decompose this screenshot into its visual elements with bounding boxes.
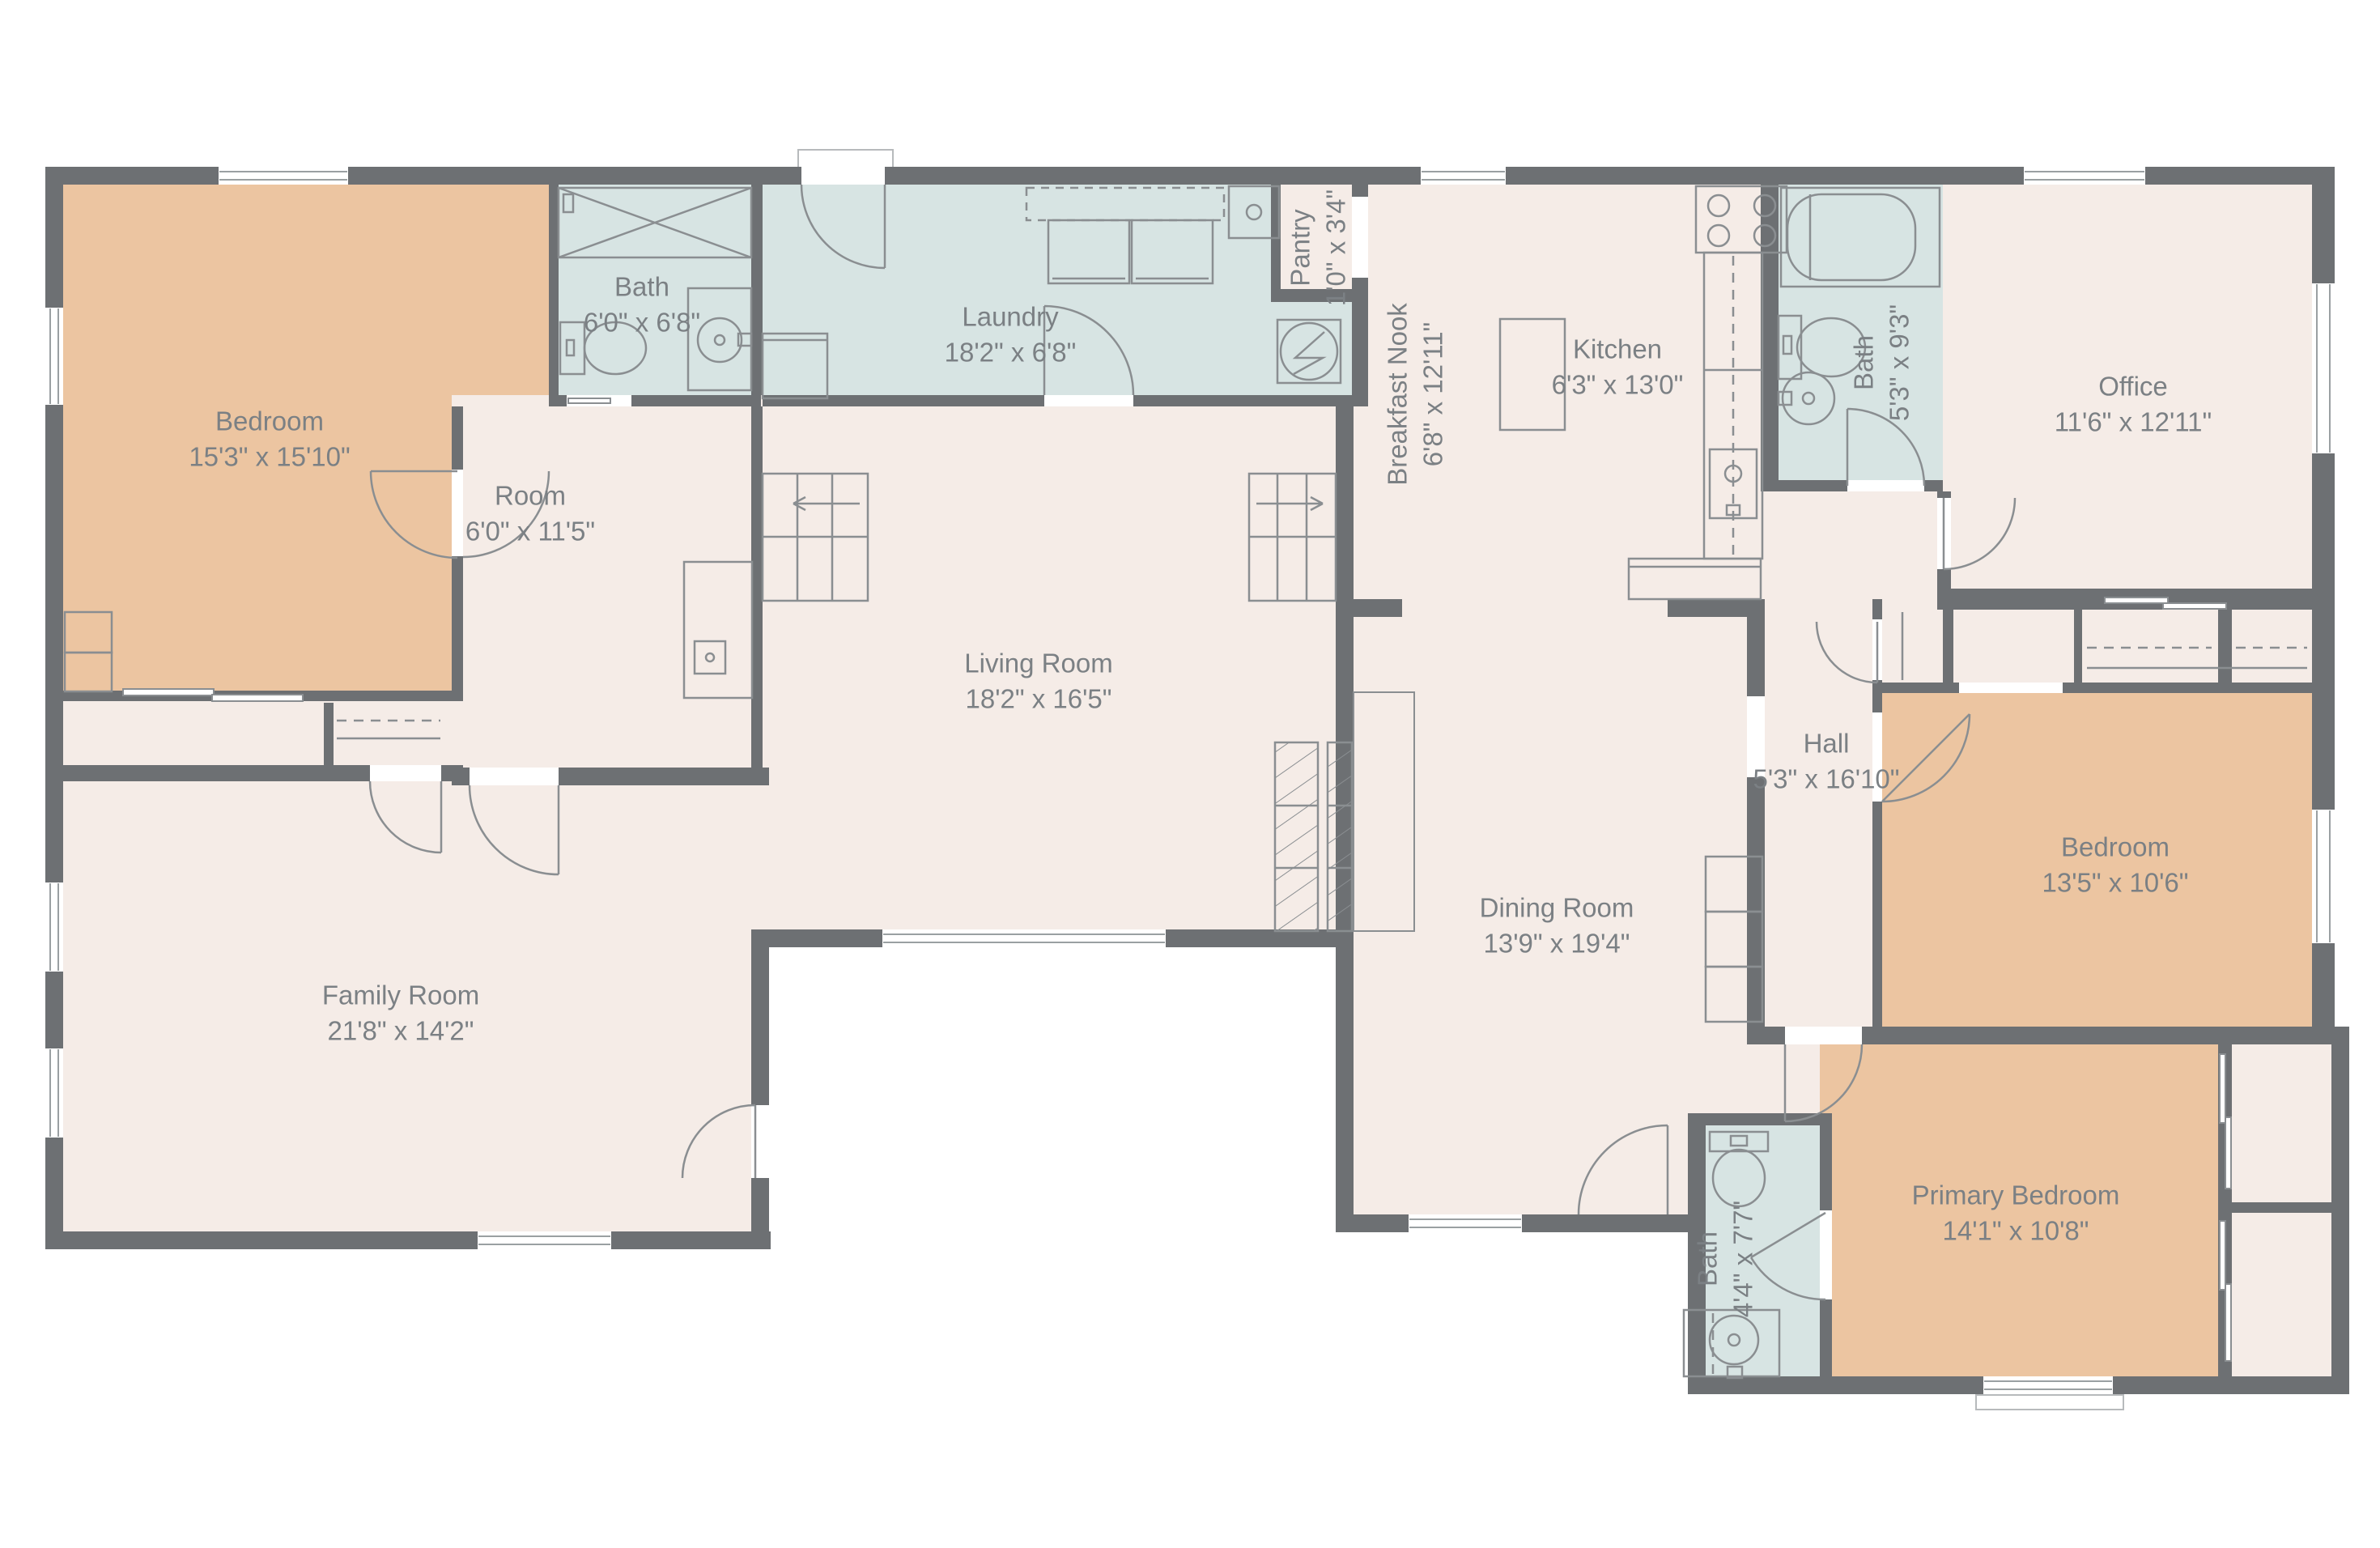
room-label-bath-top: Bath6'0" x 6'8" bbox=[584, 269, 700, 339]
closet-rod-shelf bbox=[337, 721, 440, 738]
shower-fixture bbox=[559, 188, 751, 257]
room-label-family-room: Family Room21'8" x 14'2" bbox=[322, 977, 479, 1048]
room-label-dining-room: Dining Room13'9" x 19'4" bbox=[1480, 890, 1634, 960]
room-label-bath-upper-right: Bath5'3" x 9'3" bbox=[1846, 304, 1916, 421]
laundry-counter bbox=[763, 334, 827, 398]
room-label-bedroom-right: Bedroom13'5" x 10'6" bbox=[2042, 829, 2189, 899]
floor-plan: Bedroom15'3" x 15'10" Bath6'0" x 6'8" La… bbox=[0, 0, 2380, 1548]
toilet-icon bbox=[1710, 1132, 1768, 1206]
fireplace bbox=[1275, 692, 1414, 931]
kitchen-counter bbox=[1629, 253, 1762, 599]
arrow-left-icon bbox=[793, 497, 860, 510]
built-in-unit bbox=[684, 562, 752, 698]
vanity-sink-icon bbox=[1684, 1310, 1779, 1378]
room-label-laundry: Laundry18'2" x 6'8" bbox=[945, 299, 1077, 369]
steps-left bbox=[763, 474, 868, 601]
room-label-office: Office11'6" x 12'11" bbox=[2055, 368, 2212, 439]
stove-icon bbox=[1696, 186, 1787, 253]
dining-cabinets bbox=[1706, 857, 1762, 1022]
room-label-pantry: Pantry1'0" x 3'4" bbox=[1282, 189, 1353, 306]
bathtub-icon bbox=[1781, 188, 1940, 287]
water-heater-icon bbox=[1277, 320, 1341, 383]
dresser bbox=[65, 612, 112, 691]
room-label-living-room: Living Room18'2" x 16'5" bbox=[964, 645, 1112, 716]
laundry-sink-icon bbox=[1229, 186, 1279, 238]
sink-icon bbox=[1779, 372, 1834, 424]
closet-rod-shelf bbox=[2087, 648, 2307, 668]
room-label-room: Room6'0" x 11'5" bbox=[465, 478, 595, 548]
room-label-primary-bedroom: Primary Bedroom14'1" x 10'8" bbox=[1912, 1177, 2120, 1248]
room-label-bedroom-topleft: Bedroom15'3" x 15'10" bbox=[189, 403, 350, 474]
washer-dryer-icon bbox=[1026, 188, 1224, 283]
room-label-bath-bottom: Bath4'4" x 7'7" bbox=[1689, 1201, 1760, 1317]
room-label-breakfast-nook: Breakfast Nook6'8" x 12'11" bbox=[1379, 303, 1450, 486]
room-label-kitchen: Kitchen6'3" x 13'0" bbox=[1552, 331, 1684, 402]
arrow-right-icon bbox=[1256, 497, 1323, 510]
room-label-hall: Hall5'3" x 16'10" bbox=[1753, 725, 1900, 796]
steps-right bbox=[1249, 474, 1336, 601]
fixtures-layer bbox=[0, 0, 2380, 1548]
